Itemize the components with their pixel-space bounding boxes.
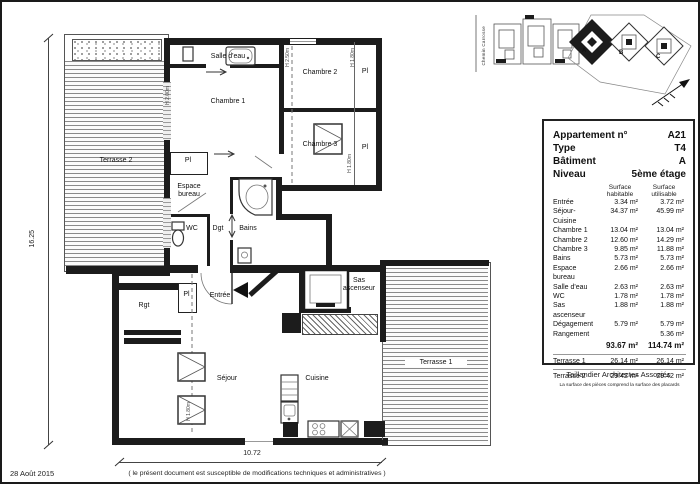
area-cell: Entrée bbox=[553, 198, 594, 207]
area-cell: 9.85 m² bbox=[594, 245, 640, 254]
area-row: Espace bureau2.66 m²2.66 m² bbox=[553, 264, 686, 283]
street-name-label: Chemin Carrosse bbox=[481, 26, 486, 66]
area-cell bbox=[594, 330, 640, 339]
wall-segment bbox=[230, 64, 279, 68]
info-header-value: A21 bbox=[668, 129, 686, 142]
room-label-salle-eau: Salle d'eau bbox=[196, 53, 260, 61]
total-row: 93.67 m² 114.74 m² bbox=[553, 339, 686, 352]
area-cell: 5.73 m² bbox=[594, 254, 640, 263]
disclaimer-text: ( le présent document est susceptible de… bbox=[72, 470, 442, 477]
building-label-b: B bbox=[619, 50, 623, 56]
area-cell: 13.04 m² bbox=[594, 226, 640, 235]
wall-segment bbox=[276, 214, 332, 220]
total-utilisable: 114.74 m² bbox=[640, 339, 686, 352]
wall-segment bbox=[124, 338, 181, 344]
area-cell: 14.29 m² bbox=[640, 236, 686, 245]
area-cell: 45.99 m² bbox=[640, 207, 686, 226]
height-mark: H 2.50m bbox=[285, 48, 291, 67]
wall-segment bbox=[112, 438, 245, 445]
area-cell: Salle d'eau bbox=[553, 283, 594, 292]
area-cell: 26.14 m² bbox=[640, 357, 686, 367]
wall-segment bbox=[230, 265, 334, 273]
building-label-a: A bbox=[582, 48, 586, 54]
total-label bbox=[553, 339, 594, 352]
wall-segment bbox=[299, 272, 305, 312]
area-cell: Chambre 1 bbox=[553, 226, 594, 235]
area-cell: 3.34 m² bbox=[594, 198, 640, 207]
total-habitable: 93.67 m² bbox=[594, 339, 640, 352]
info-header-row: Type T4 bbox=[553, 142, 686, 155]
closet-label: Pl bbox=[178, 291, 195, 299]
area-cell: 1.88 m² bbox=[640, 301, 686, 320]
info-header-row: Appartement n° A21 bbox=[553, 129, 686, 142]
area-row: Chambre 212.60 m²14.29 m² bbox=[553, 236, 686, 245]
info-header-row: Niveau 5ème étage bbox=[553, 168, 686, 181]
room-label-entree: Entrée bbox=[199, 292, 241, 300]
area-row: WC1.78 m²1.78 m² bbox=[553, 292, 686, 301]
area-row: Bains5.73 m²5.73 m² bbox=[553, 254, 686, 263]
area-row: Chambre 113.04 m²13.04 m² bbox=[553, 226, 686, 235]
sheet-date: 28 Août 2015 bbox=[10, 469, 54, 478]
area-cell: Chambre 2 bbox=[553, 236, 594, 245]
area-cell: 12.60 m² bbox=[594, 236, 640, 245]
area-cell: Sas ascenseur bbox=[553, 301, 594, 320]
height-mark: H 1.80m bbox=[350, 48, 356, 67]
wall-segment bbox=[170, 64, 206, 68]
area-cell: 5.73 m² bbox=[640, 254, 686, 263]
room-label-sas-ascenseur: Sas ascenseur bbox=[338, 277, 380, 293]
area-cell: 26.14 m² bbox=[594, 357, 640, 367]
spacer bbox=[553, 184, 598, 198]
wall-segment bbox=[124, 330, 181, 335]
wall-segment bbox=[376, 38, 382, 191]
room-label-chambre-3: Chambre 3 bbox=[288, 141, 352, 149]
info-header-value: 5ème étage bbox=[632, 168, 686, 181]
wall-segment bbox=[326, 214, 332, 271]
area-cell: 2.66 m² bbox=[640, 264, 686, 283]
area-cell: 5.79 m² bbox=[594, 320, 640, 329]
area-cell: Espace bureau bbox=[553, 264, 594, 283]
area-row: Rangement5.36 m² bbox=[553, 330, 686, 339]
terrace-1-decking bbox=[383, 268, 488, 443]
area-cell: 5.36 m² bbox=[640, 330, 686, 339]
info-header-value: T4 bbox=[674, 142, 686, 155]
wall-segment bbox=[279, 38, 284, 154]
room-label-cuisine: Cuisine bbox=[295, 375, 339, 383]
area-cell: Dégagement bbox=[553, 320, 594, 329]
height-mark: H 2.00m bbox=[165, 86, 171, 105]
room-label-espace-bureau: Espace bureau bbox=[164, 183, 214, 199]
room-label-wc: WC bbox=[180, 225, 204, 233]
room-label-rgt: Rgt bbox=[130, 302, 158, 310]
info-header-label: Appartement n° bbox=[553, 129, 628, 142]
window bbox=[163, 198, 171, 248]
wall-segment bbox=[207, 214, 210, 266]
duct-block bbox=[282, 313, 301, 333]
area-row: Terrasse 126.14 m²26.14 m² bbox=[553, 354, 686, 367]
window bbox=[245, 439, 273, 444]
info-header-label: Type bbox=[553, 142, 576, 155]
terrace-2-gravel-band bbox=[72, 39, 162, 61]
room-label-dgt: Dgt bbox=[205, 225, 231, 233]
area-cell: 2.66 m² bbox=[594, 264, 640, 283]
architect-firm-label: Taillandier Architectes Associés bbox=[542, 370, 695, 379]
dimension-label-height: 16.25 bbox=[29, 230, 36, 248]
room-label-sas-line2: ascenseur bbox=[343, 285, 375, 292]
column-header-utilisable: Surface utilisable bbox=[642, 184, 686, 198]
area-cell: Séjour-Cuisine bbox=[553, 207, 594, 226]
area-row: Séjour-Cuisine34.37 m²45.99 m² bbox=[553, 207, 686, 226]
apartment-info-table: Appartement n° A21 Type T4 Bâtiment A Ni… bbox=[542, 119, 695, 365]
area-cell: 2.63 m² bbox=[640, 283, 686, 292]
area-cell: 5.79 m² bbox=[640, 320, 686, 329]
plan-sheet: Terrasse 2 Terrasse 1 bbox=[0, 0, 700, 484]
area-row: Chambre 39.85 m²11.88 m² bbox=[553, 245, 686, 254]
info-header-label: Niveau bbox=[553, 168, 586, 181]
dimension-line-vertical bbox=[48, 38, 49, 445]
area-row: Dégagement5.79 m²5.79 m² bbox=[553, 320, 686, 329]
wall-segment bbox=[280, 185, 382, 191]
info-header-row: Bâtiment A bbox=[553, 155, 686, 168]
room-label-sas-line1: Sas bbox=[353, 277, 365, 284]
height-mark: H 1.80m bbox=[186, 402, 192, 421]
area-cell: Bains bbox=[553, 254, 594, 263]
wall-segment bbox=[282, 108, 376, 112]
info-header-label: Bâtiment bbox=[553, 155, 596, 168]
closet-label: Pl bbox=[170, 157, 206, 165]
closet-label: Pl bbox=[352, 68, 378, 76]
wall-segment bbox=[230, 240, 233, 267]
table-footnote: La surface des pièces comprend la surfac… bbox=[553, 383, 686, 388]
room-label-sejour: Séjour bbox=[205, 375, 249, 383]
glazing-line bbox=[382, 342, 383, 440]
area-cell: 1.88 m² bbox=[594, 301, 640, 320]
closet-label: Pl bbox=[352, 144, 378, 152]
room-label-espace-line2: bureau bbox=[178, 191, 200, 198]
area-cell: Rangement bbox=[553, 330, 594, 339]
wall-segment bbox=[273, 438, 388, 445]
room-label-chambre-1: Chambre 1 bbox=[196, 98, 260, 106]
area-row: Sas ascenseur1.88 m²1.88 m² bbox=[553, 301, 686, 320]
surface-column-headers: Surface habitable Surface utilisable bbox=[553, 184, 686, 198]
area-cell: 2.63 m² bbox=[594, 283, 640, 292]
room-label-espace-line1: Espace bbox=[177, 183, 200, 190]
area-cell: 34.37 m² bbox=[594, 207, 640, 226]
area-cell: Terrasse 1 bbox=[553, 357, 594, 367]
room-label-bains: Bains bbox=[232, 225, 264, 233]
column-header-habitable: Surface habitable bbox=[598, 184, 642, 198]
north-arrow-icon bbox=[652, 81, 687, 106]
wall-segment bbox=[334, 265, 380, 272]
wall-segment bbox=[230, 180, 233, 214]
window bbox=[290, 39, 316, 44]
wall-segment bbox=[164, 38, 382, 45]
area-cell: 3.72 m² bbox=[640, 198, 686, 207]
area-cell: 13.04 m² bbox=[640, 226, 686, 235]
area-row: Salle d'eau2.63 m²2.63 m² bbox=[553, 283, 686, 292]
room-label-chambre-2: Chambre 2 bbox=[288, 69, 352, 77]
area-cell: Chambre 3 bbox=[553, 245, 594, 254]
wall-segment bbox=[230, 177, 282, 180]
room-label-terrasse-2: Terrasse 2 bbox=[85, 157, 147, 165]
wall-segment bbox=[299, 307, 351, 313]
wall-segment bbox=[119, 283, 181, 290]
area-rows: Entrée3.34 m²3.72 m²Séjour-Cuisine34.37 … bbox=[553, 198, 686, 339]
wall-segment bbox=[380, 260, 489, 266]
wall-segment bbox=[380, 266, 386, 342]
height-mark: H 1.80m bbox=[347, 154, 353, 173]
area-cell: 11.88 m² bbox=[640, 245, 686, 254]
wall-segment bbox=[112, 269, 170, 276]
wall-segment bbox=[170, 214, 210, 217]
stair-landing-hatch bbox=[302, 314, 378, 335]
area-row: Entrée3.34 m²3.72 m² bbox=[553, 198, 686, 207]
area-cell: WC bbox=[553, 292, 594, 301]
area-cell: 1.78 m² bbox=[640, 292, 686, 301]
dimension-label-width: 10.72 bbox=[230, 450, 274, 457]
building-label-c: C bbox=[656, 54, 660, 60]
wall-segment bbox=[112, 272, 119, 445]
dimension-line-horizontal bbox=[119, 462, 382, 463]
area-cell: 1.78 m² bbox=[594, 292, 640, 301]
room-label-terrasse-1: Terrasse 1 bbox=[405, 359, 467, 367]
info-header-value: A bbox=[679, 155, 686, 168]
